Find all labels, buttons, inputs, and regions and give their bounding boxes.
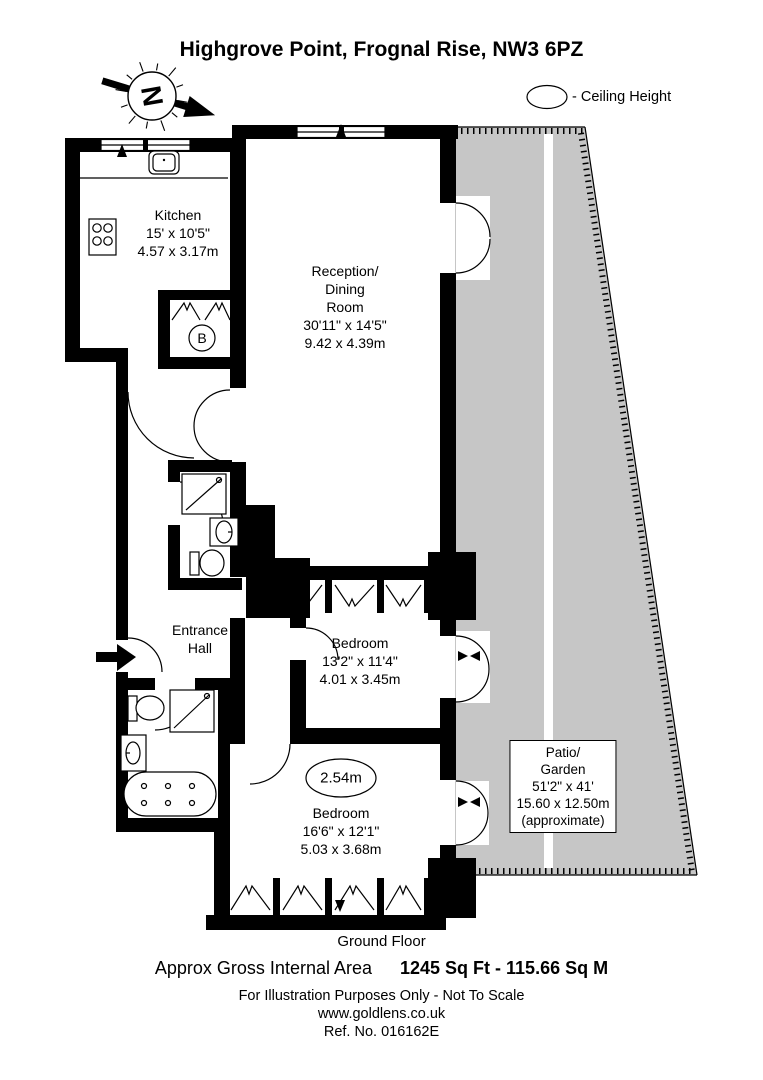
bathroom-toilet-icon — [128, 696, 164, 721]
area-summary: Approx Gross Internal Area1245 Sq Ft - 1… — [0, 958, 763, 979]
kitchen-window — [101, 138, 190, 152]
room-name: Hall — [172, 639, 228, 657]
bedroom1-label: Bedroom 13'2" x 11'4" 4.01 x 3.45m — [320, 634, 401, 688]
disclaimer: For Illustration Purposes Only - Not To … — [0, 988, 763, 1004]
room-metric: 9.42 x 4.39m — [303, 334, 387, 352]
sink-icon — [149, 151, 179, 174]
reception-double-door-arc — [194, 426, 230, 462]
bathroom-shower-icon — [170, 690, 214, 732]
room-metric: 5.03 x 3.68m — [301, 840, 382, 858]
room-name: Bedroom — [301, 804, 382, 822]
room-metric: 4.01 x 3.45m — [320, 670, 401, 688]
area-value: 1245 Sq Ft - 115.66 Sq M — [400, 958, 608, 978]
kitchen-label: Kitchen 15' x 10'5" 4.57 x 3.17m — [138, 206, 219, 260]
room-name: Room — [303, 298, 387, 316]
title-line2: Frognal Rise, NW3 6PZ — [353, 38, 583, 61]
shower-room-toilet-icon — [190, 550, 224, 576]
bedroom2-door-arc — [250, 744, 290, 784]
room-imperial: 13'2" x 11'4" — [320, 652, 401, 670]
room-imperial: 16'6" x 12'1" — [301, 822, 382, 840]
legend-label: - Ceiling Height — [572, 89, 671, 105]
room-metric: 15.60 x 12.50m — [516, 795, 609, 812]
hob-icon — [89, 219, 116, 255]
room-metric: 4.57 x 3.17m — [138, 242, 219, 260]
entry-door-arc — [128, 638, 162, 672]
bedroom2-ceiling-height: 2.54m — [320, 770, 362, 787]
legend-ellipse — [527, 86, 567, 109]
area-label: Approx Gross Internal Area — [155, 958, 372, 978]
patio-garden-label: Patio/ Garden 51'2" x 41' 15.60 x 12.50m… — [509, 740, 616, 833]
page-title: Highgrove Point, Frognal Rise, NW3 6PZ — [0, 36, 763, 63]
hall-door-arc — [128, 392, 194, 458]
website: www.goldlens.co.uk — [0, 1006, 763, 1022]
room-imperial: 15' x 10'5" — [138, 224, 219, 242]
bathroom-basin-icon — [121, 735, 146, 771]
reception-label: Reception/ Dining Room 30'11" x 14'5" 9.… — [303, 262, 387, 352]
room-note: (approximate) — [516, 812, 609, 829]
floor-name: Ground Floor — [0, 933, 763, 950]
room-name: Bedroom — [320, 634, 401, 652]
reception-double-door-arc — [194, 390, 230, 426]
room-name: Reception/ — [303, 262, 387, 280]
reception-french-doors — [456, 196, 490, 280]
shower-room-basin-icon — [210, 518, 238, 546]
bedroom2-french-doors — [456, 781, 489, 845]
north-arrow-icon: N — [99, 62, 218, 131]
entry-arrow-icon — [96, 644, 136, 671]
bedroom2-label: Bedroom 16'6" x 12'1" 5.03 x 3.68m — [301, 804, 382, 858]
walls — [65, 125, 476, 930]
entrance-hall-label: Entrance Hall — [172, 621, 228, 657]
room-imperial: 51'2" x 41' — [516, 778, 609, 795]
floorplan-drawing: N — [0, 0, 763, 1080]
boiler-label: B — [197, 330, 206, 346]
room-name: Patio/ — [516, 744, 609, 761]
shower-room-shower-icon — [182, 474, 226, 514]
room-name: Dining — [303, 280, 387, 298]
room-name: Garden — [516, 761, 609, 778]
bathtub-icon — [124, 772, 216, 816]
floorplan-page: { "title": {"line1": "Highgrove Point,",… — [0, 0, 763, 1080]
title-line1: Highgrove Point, — [180, 38, 348, 61]
room-name: Kitchen — [138, 206, 219, 224]
room-imperial: 30'11" x 14'5" — [303, 316, 387, 334]
room-name: Entrance — [172, 621, 228, 639]
bedroom1-french-doors — [456, 631, 490, 703]
reference-number: Ref. No. 016162E — [0, 1024, 763, 1040]
dim-arrow-bedroom2 — [335, 900, 345, 912]
